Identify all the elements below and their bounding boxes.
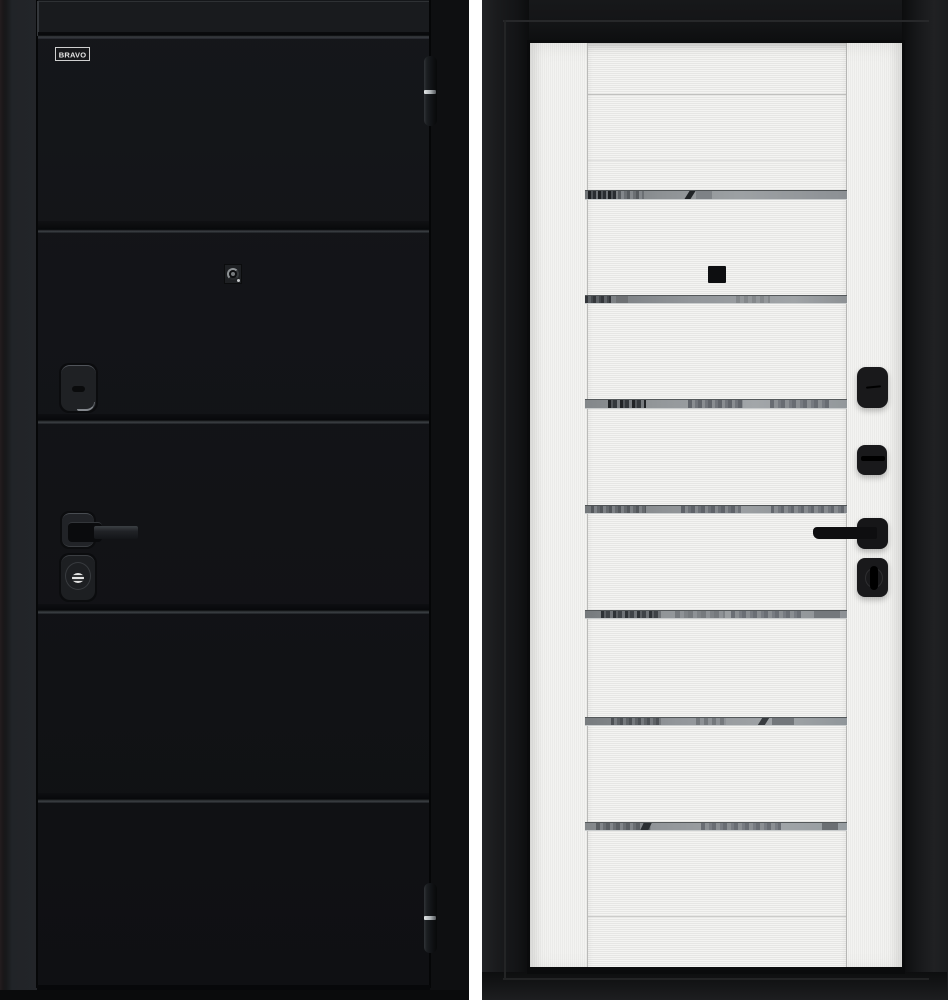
svg-text:BRAVO: BRAVO (59, 51, 87, 60)
